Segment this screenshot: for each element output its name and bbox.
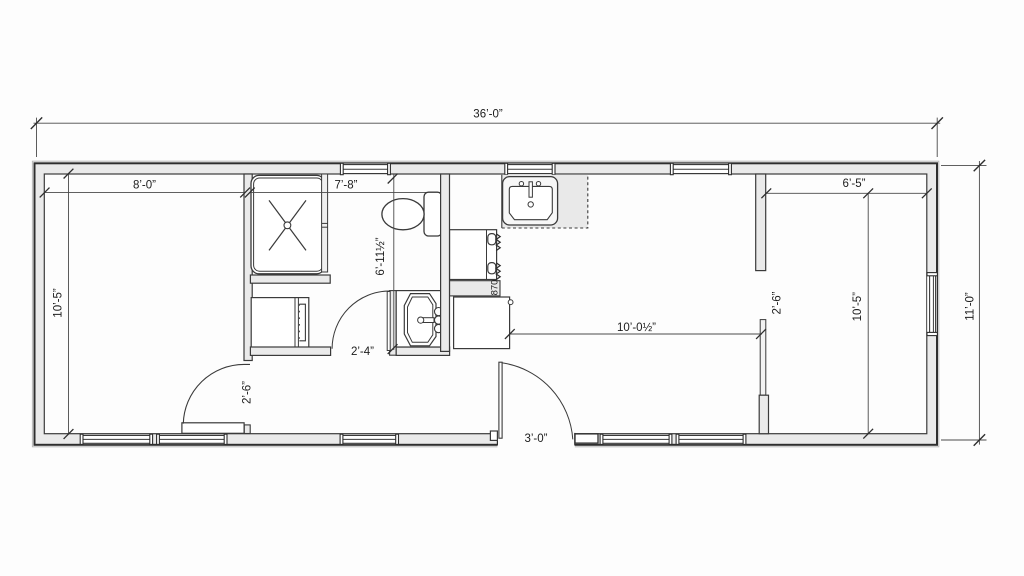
svg-text:870: 870 bbox=[490, 280, 501, 296]
svg-text:6’-11½”: 6’-11½” bbox=[375, 237, 387, 275]
svg-text:10’-5”: 10’-5” bbox=[852, 292, 864, 322]
svg-text:2’-6”: 2’-6” bbox=[242, 381, 254, 404]
svg-text:8’-0”: 8’-0” bbox=[133, 179, 156, 191]
svg-text:10’-5”: 10’-5” bbox=[53, 288, 65, 318]
svg-text:2’-4”: 2’-4” bbox=[351, 346, 374, 358]
svg-text:2’-6”: 2’-6” bbox=[772, 291, 784, 314]
svg-text:36’-0”: 36’-0” bbox=[473, 109, 503, 121]
svg-text:11’-0”: 11’-0” bbox=[964, 292, 976, 321]
svg-text:6’-5”: 6’-5” bbox=[842, 178, 865, 190]
svg-text:7’-8”: 7’-8” bbox=[334, 179, 357, 191]
svg-text:10’-0½”: 10’-0½” bbox=[617, 322, 656, 334]
svg-text:3’-0”: 3’-0” bbox=[524, 433, 547, 445]
